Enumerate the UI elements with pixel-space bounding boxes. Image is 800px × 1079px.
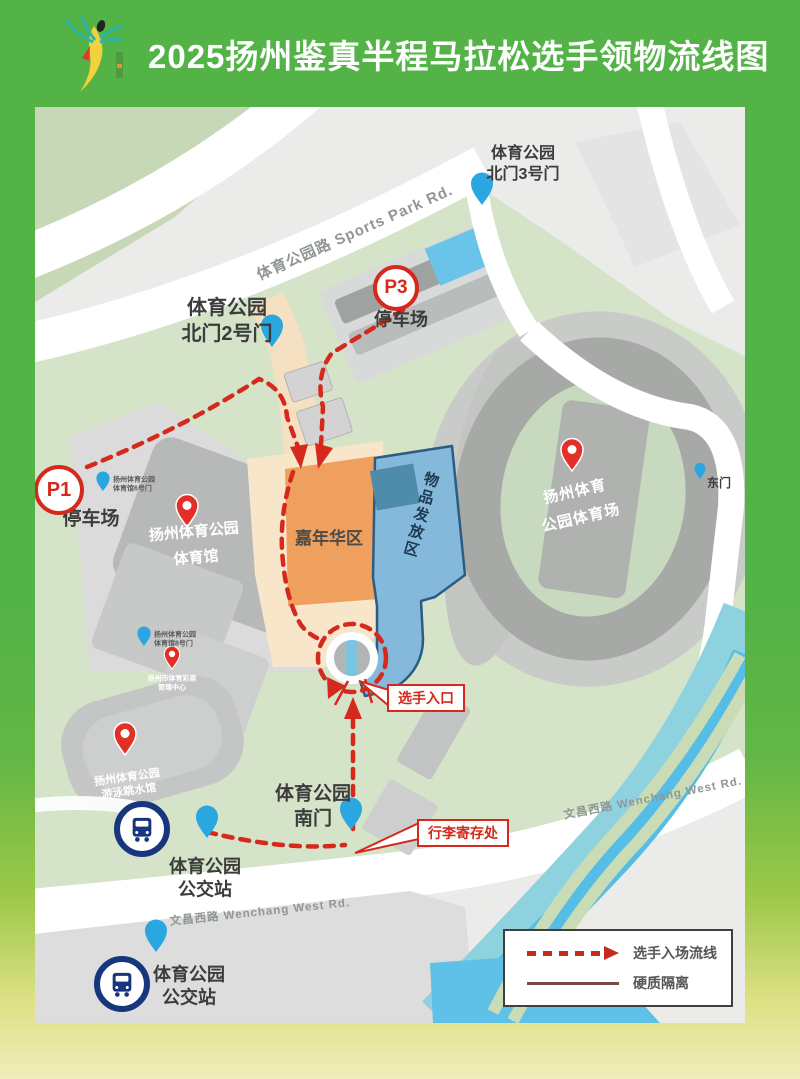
isolation-line-symbol bbox=[527, 982, 619, 985]
flow-map: 体育公园路 Sports Park Rd. 文昌西路 Wenchang West… bbox=[35, 107, 745, 1023]
north-gate3-label: 体育公园 北门3号门 bbox=[487, 144, 560, 186]
legend-isolation-label: 硬质隔离 bbox=[633, 973, 689, 993]
page-title: 2025扬州鉴真半程马拉松选手领物流线图 bbox=[148, 30, 769, 78]
title-bar: 2025扬州鉴真半程马拉松选手领物流线图 bbox=[0, 0, 800, 107]
legend-isolation-row: 硬质隔离 bbox=[527, 973, 731, 993]
lottery-center-label: 扬州市体育彩票 管理中心 bbox=[148, 675, 197, 693]
gymnasium-label: 扬州体育公园 体育馆 bbox=[148, 516, 242, 575]
bus-icon bbox=[108, 970, 136, 998]
east-gate-label: 东门 bbox=[707, 476, 731, 492]
luggage-storage-callout: 行李寄存处 bbox=[417, 819, 509, 847]
map-base-layer bbox=[35, 107, 745, 1023]
bus-station1-icon bbox=[114, 801, 170, 857]
bus-station1-label: 体育公园 公交站 bbox=[169, 856, 241, 903]
bus-station2-icon bbox=[94, 956, 150, 1012]
gym-gate8-label: 扬州体育公园 体育馆8号门 bbox=[154, 631, 196, 649]
athlete-entrance-callout: 选手入口 bbox=[387, 684, 465, 712]
legend-flow-row: 选手入场流线 bbox=[527, 943, 731, 963]
p3-parking-badge: P3 bbox=[373, 265, 419, 311]
bus-icon bbox=[128, 815, 156, 843]
p1-parking-badge: P1 bbox=[35, 465, 84, 515]
p3-parking-label: 停车场 bbox=[374, 308, 428, 331]
legend-box: 选手入场流线 硬质隔离 bbox=[503, 929, 733, 1007]
carnival-zone-label: 嘉年华区 bbox=[295, 528, 363, 550]
event-logo-icon bbox=[60, 12, 138, 96]
south-gate-label: 体育公园 南门 bbox=[275, 782, 351, 831]
legend-flow-label: 选手入场流线 bbox=[633, 943, 717, 963]
north-gate2-label: 体育公园 北门2号门 bbox=[181, 295, 272, 347]
bus-station2-label: 体育公园 公交站 bbox=[153, 964, 225, 1011]
flow-line-symbol bbox=[527, 946, 619, 960]
gym-gate6-label: 扬州体育公园 体育馆6号门 bbox=[113, 476, 155, 494]
